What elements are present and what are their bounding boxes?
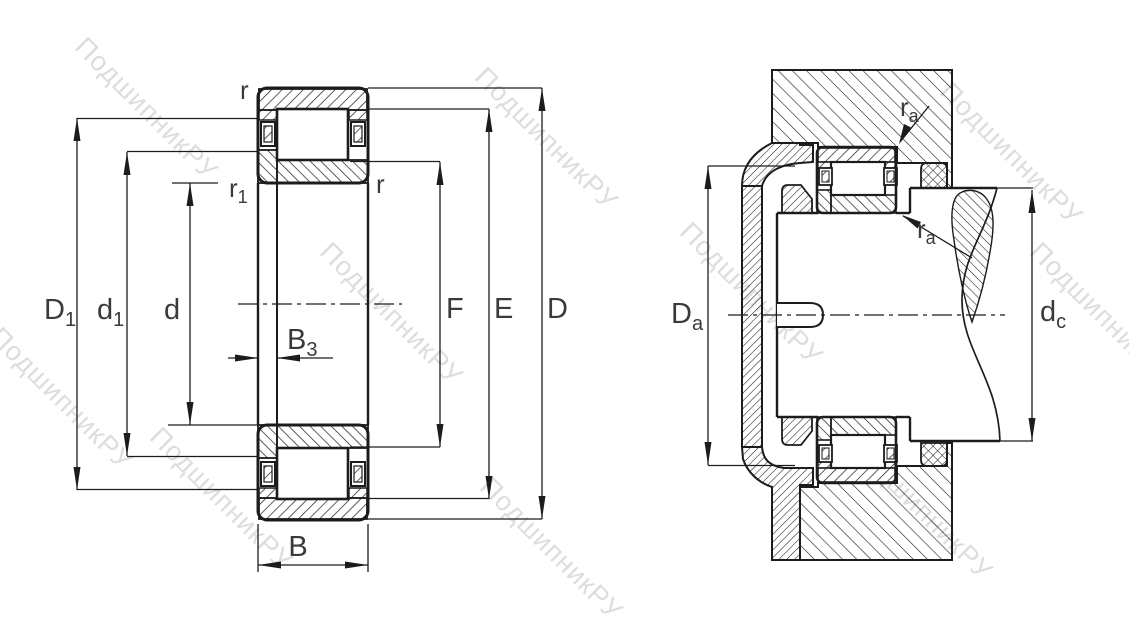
- roller: [277, 109, 348, 160]
- inner-ring-flange: [258, 425, 277, 458]
- bearing-upper-section: [258, 88, 368, 183]
- inner-ring-section: [277, 160, 368, 183]
- cage-bar-core: [354, 466, 362, 482]
- inner-ring-section: [277, 425, 368, 448]
- left-view-bearing-section: D1 d1 d F E D B B3 r r1 r: [44, 75, 568, 572]
- outer-ring-land: [259, 110, 277, 120]
- dim-arrow: [187, 402, 194, 425]
- label-d1: d1: [97, 294, 124, 331]
- cage-bar-core: [354, 126, 362, 142]
- watermark-text: ПодшипникРУ: [0, 321, 139, 475]
- label-ra-bottom: ra: [917, 214, 937, 248]
- end-cover-plate: [742, 186, 762, 447]
- watermark-text: ПодшипникРУ: [474, 471, 628, 625]
- outer-ring-land: [349, 110, 367, 120]
- label-d: d: [164, 294, 180, 326]
- cage-bar-core: [264, 126, 272, 142]
- dim-arrow: [1029, 418, 1036, 441]
- dim-arrow: [437, 424, 444, 447]
- label-r1-base: r: [229, 173, 238, 203]
- label-ra-top-sub: a: [909, 106, 920, 126]
- dim-arrow: [74, 467, 81, 490]
- dim-arrow: [486, 109, 493, 132]
- mounted-bearing-lower: [817, 417, 897, 483]
- cage-bar-core: [822, 171, 829, 182]
- label-ra-top-base: r: [900, 92, 909, 122]
- outer-ring-section: [818, 148, 895, 162]
- label-F: F: [446, 293, 464, 325]
- cage-bar-core: [264, 466, 272, 482]
- roller: [831, 435, 885, 468]
- outer-ring-land: [349, 488, 367, 498]
- cage-bar-core: [887, 448, 894, 459]
- inner-ring-flange: [817, 190, 831, 213]
- inner-ring-section: [831, 417, 896, 435]
- label-Da: Da: [671, 298, 704, 335]
- watermark-text: ПодшипникРУ: [469, 61, 623, 215]
- slinger-ring-upper: [782, 185, 812, 213]
- label-r-inner: r: [376, 169, 385, 199]
- inner-ring-section: [831, 195, 896, 213]
- dim-arrow: [74, 118, 81, 141]
- outer-ring-section: [259, 498, 367, 519]
- label-d1-sub: 1: [113, 309, 124, 331]
- label-B3-sub: 3: [306, 339, 317, 361]
- seal-ring-upper: [921, 163, 947, 188]
- inner-ring-flange: [817, 417, 831, 440]
- label-D1: D1: [44, 294, 76, 331]
- dim-arrow: [705, 442, 712, 465]
- seal-ring-lower: [921, 443, 947, 466]
- label-r-top: r: [240, 75, 249, 105]
- label-ra-bottom-sub: a: [926, 228, 937, 248]
- label-r1: r1: [229, 173, 248, 207]
- end-cover-upper-arm: [742, 143, 813, 186]
- dim-arrow: [539, 88, 546, 111]
- bearing-technical-drawing: ПодшипникРУ ПодшипникРУ ПодшипникРУ Подш…: [0, 0, 1129, 632]
- roller: [831, 162, 885, 195]
- bearing-drawing-page: ПодшипникРУ ПодшипникРУ ПодшипникРУ Подш…: [0, 0, 1129, 632]
- slinger-ring-lower: [782, 417, 812, 445]
- label-d1-base: d: [97, 294, 113, 326]
- dim-arrow: [124, 152, 131, 175]
- shaft-break-section: [952, 190, 993, 322]
- label-dc: dc: [1040, 296, 1066, 333]
- label-dc-base: d: [1040, 296, 1056, 328]
- dim-arrow: [187, 183, 194, 206]
- label-D1-sub: 1: [65, 309, 76, 331]
- dim-arrow: [705, 166, 712, 189]
- label-Da-sub: a: [692, 313, 704, 335]
- label-Da-base: D: [671, 298, 692, 330]
- roller: [277, 448, 348, 499]
- label-B3: B3: [287, 324, 317, 361]
- label-D: D: [547, 293, 568, 325]
- watermarks: ПодшипникРУ ПодшипникРУ ПодшипникРУ Подш…: [0, 31, 1129, 625]
- label-B3-base: B: [287, 324, 306, 356]
- dim-arrow: [345, 562, 368, 569]
- outer-ring-section: [259, 89, 367, 110]
- label-r1-sub: 1: [238, 187, 248, 207]
- watermark-text: ПодшипникРУ: [69, 31, 223, 185]
- mounted-bearing-upper: [817, 147, 897, 213]
- label-ra-bottom-base: r: [917, 214, 926, 244]
- cage-bar-core: [822, 448, 829, 459]
- outer-ring-land: [259, 488, 277, 498]
- inner-ring-flange: [258, 150, 277, 183]
- label-B: B: [288, 531, 307, 563]
- bearing-lower-section: [258, 425, 368, 520]
- label-E: E: [494, 293, 513, 325]
- outer-ring-section: [818, 468, 895, 482]
- dim-arrow: [235, 355, 258, 362]
- dim-arrow: [437, 162, 444, 185]
- label-D1-base: D: [44, 294, 65, 326]
- label-dc-sub: c: [1056, 311, 1066, 333]
- cage-bar-core: [887, 171, 894, 182]
